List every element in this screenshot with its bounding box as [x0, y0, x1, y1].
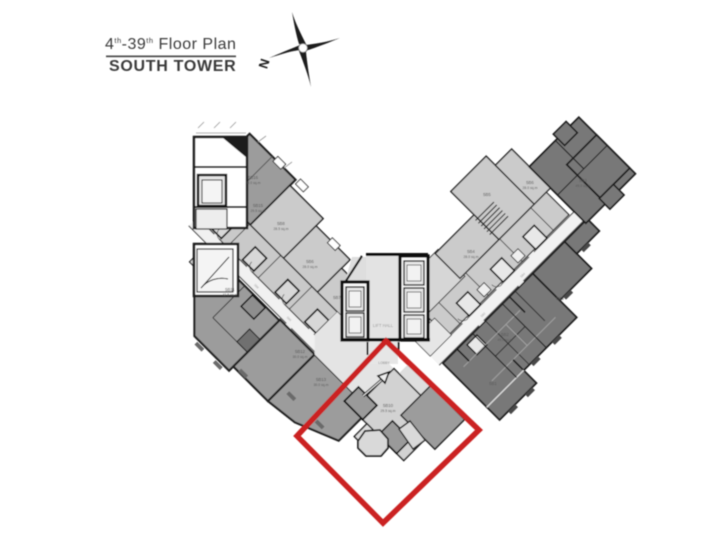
- svg-text:5B6: 5B6: [526, 180, 534, 185]
- svg-text:49.0 sq.m: 49.0 sq.m: [498, 338, 513, 342]
- svg-text:SOUTH TOWER: SOUTH TOWER: [109, 58, 236, 75]
- svg-text:42.5 sq.m: 42.5 sq.m: [223, 293, 238, 297]
- svg-text:LOBBY: LOBBY: [378, 361, 390, 365]
- svg-text:30.0 sq.m: 30.0 sq.m: [293, 355, 308, 359]
- svg-text:5B11: 5B11: [225, 287, 235, 292]
- svg-text:5B3: 5B3: [556, 296, 564, 301]
- svg-text:4th-39th Floor Plan: 4th-39th Floor Plan: [105, 36, 236, 53]
- svg-text:5B16: 5B16: [248, 175, 259, 180]
- svg-text:28.5 sq.m: 28.5 sq.m: [274, 227, 289, 231]
- svg-text:28.0 sq.m: 28.0 sq.m: [523, 186, 538, 190]
- svg-text:5B7: 5B7: [333, 295, 341, 300]
- svg-text:5B13: 5B13: [316, 377, 327, 382]
- svg-text:49.0 sq.m: 49.0 sq.m: [576, 184, 591, 188]
- svg-text:5B6: 5B6: [306, 259, 314, 264]
- svg-text:5B10: 5B10: [383, 403, 394, 408]
- svg-text:5B15: 5B15: [253, 203, 264, 208]
- svg-text:5B3: 5B3: [579, 178, 587, 183]
- svg-text:5B5: 5B5: [483, 192, 491, 197]
- svg-text:5B8: 5B8: [277, 221, 285, 226]
- svg-text:N: N: [255, 57, 272, 71]
- svg-text:5B12: 5B12: [295, 349, 306, 354]
- svg-text:30.0 sq.m: 30.0 sq.m: [314, 383, 329, 387]
- svg-text:5B1: 5B1: [489, 381, 497, 386]
- svg-text:LIFT HALL: LIFT HALL: [373, 323, 394, 328]
- svg-text:28.0 sq.m: 28.0 sq.m: [303, 265, 318, 269]
- svg-text:5B2: 5B2: [501, 332, 509, 337]
- svg-text:29.5 sq.m: 29.5 sq.m: [381, 409, 396, 413]
- svg-text:5B4: 5B4: [467, 249, 475, 254]
- svg-text:28.0 sq.m: 28.0 sq.m: [246, 181, 261, 185]
- svg-text:29.5 sq.m: 29.5 sq.m: [251, 209, 266, 213]
- svg-text:28.0 sq.m: 28.0 sq.m: [464, 255, 479, 259]
